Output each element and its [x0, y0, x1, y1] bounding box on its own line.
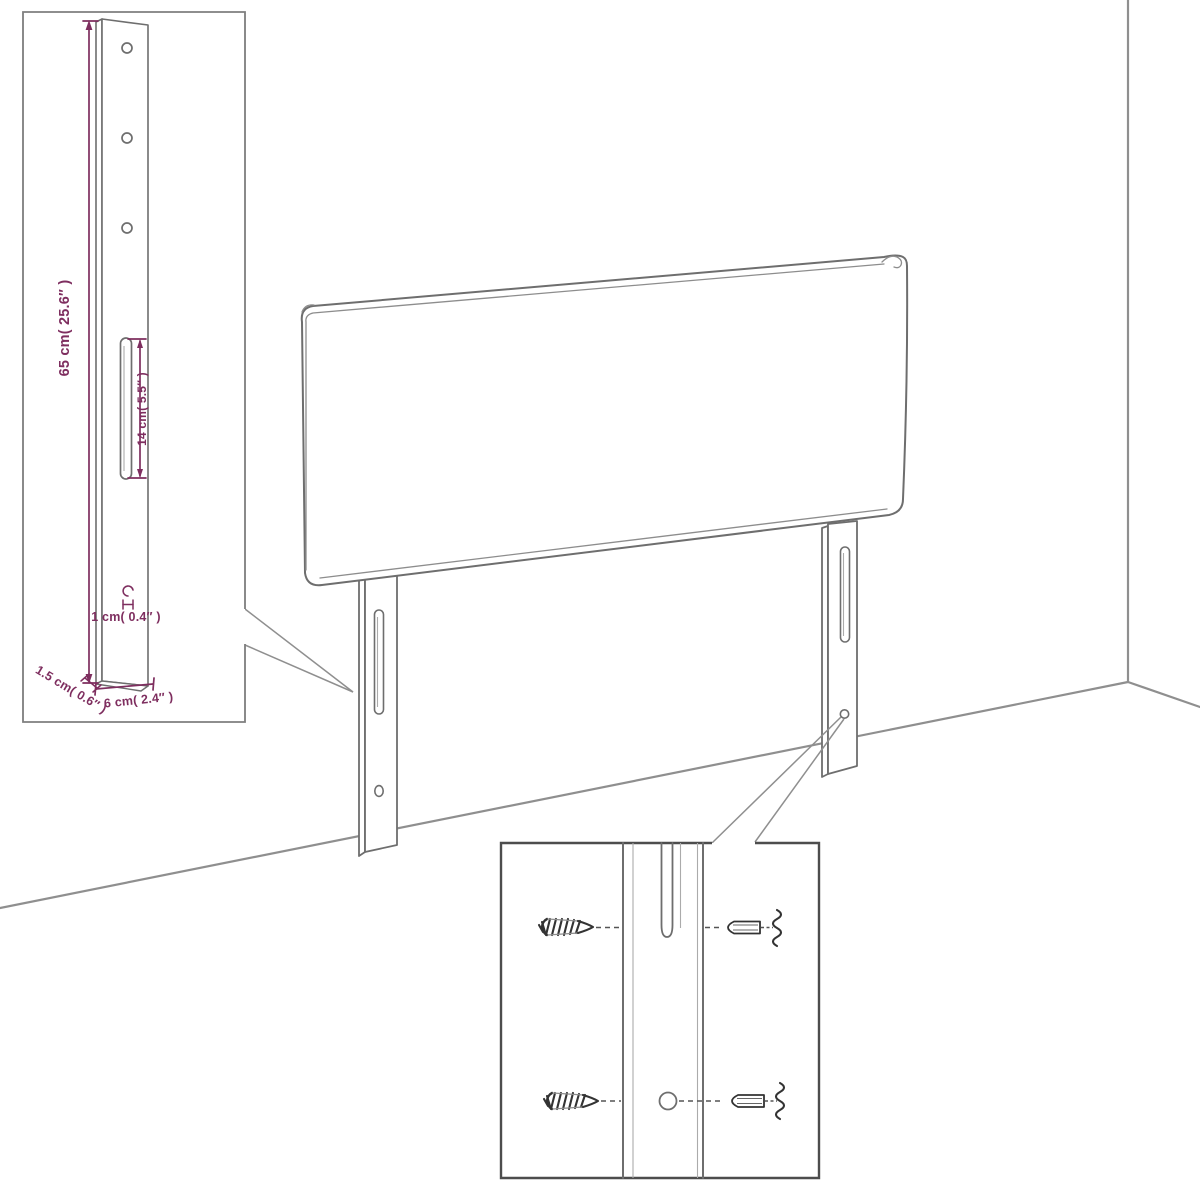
width-tick-right	[153, 678, 154, 690]
mounting-detail-inset	[501, 843, 819, 1178]
leg-detail-inset: 65 cm( 25.6″ ) 14 cm( 5.5″ ) 1 cm( 0.4″ …	[23, 12, 245, 722]
leader-line-left	[712, 717, 841, 843]
leg-inset-leader-lines	[245, 609, 353, 692]
inset-background	[501, 843, 819, 1178]
right-leg	[822, 521, 857, 777]
slot-dimension-label: 14 cm( 5.5″ )	[135, 372, 149, 446]
left-leg-hole	[375, 786, 383, 797]
leader-line-lower	[245, 645, 353, 692]
floor-line-right	[1128, 682, 1200, 707]
headboard-panel	[302, 256, 907, 586]
height-dimension-label: 65 cm( 25.6″ )	[57, 280, 73, 377]
inset-leg-slot	[121, 338, 132, 479]
leader-line-right	[755, 719, 844, 842]
inset-leg-hole-middle	[122, 133, 132, 143]
right-leg-hole	[840, 710, 848, 718]
hole-dimension-label: 1 cm( 0.4″ )	[91, 610, 161, 624]
wall-plug-icon	[728, 922, 760, 934]
headboard-dimension-diagram: 65 cm( 25.6″ ) 14 cm( 5.5″ ) 1 cm( 0.4″ …	[0, 0, 1200, 1200]
left-leg	[359, 563, 397, 856]
right-leg-slot	[841, 547, 850, 642]
leader-line-upper	[245, 609, 353, 692]
inset-leg-side-face	[96, 19, 102, 684]
left-leg-slot	[375, 610, 384, 714]
panel-outline	[302, 256, 907, 586]
wall-plug-icon	[732, 1095, 764, 1107]
inset-leg-hole-top	[122, 43, 132, 53]
diagram-canvas: 65 cm( 25.6″ ) 14 cm( 5.5″ ) 1 cm( 0.4″ …	[0, 0, 1200, 1200]
inset-leg-hole-bottom	[122, 223, 132, 233]
